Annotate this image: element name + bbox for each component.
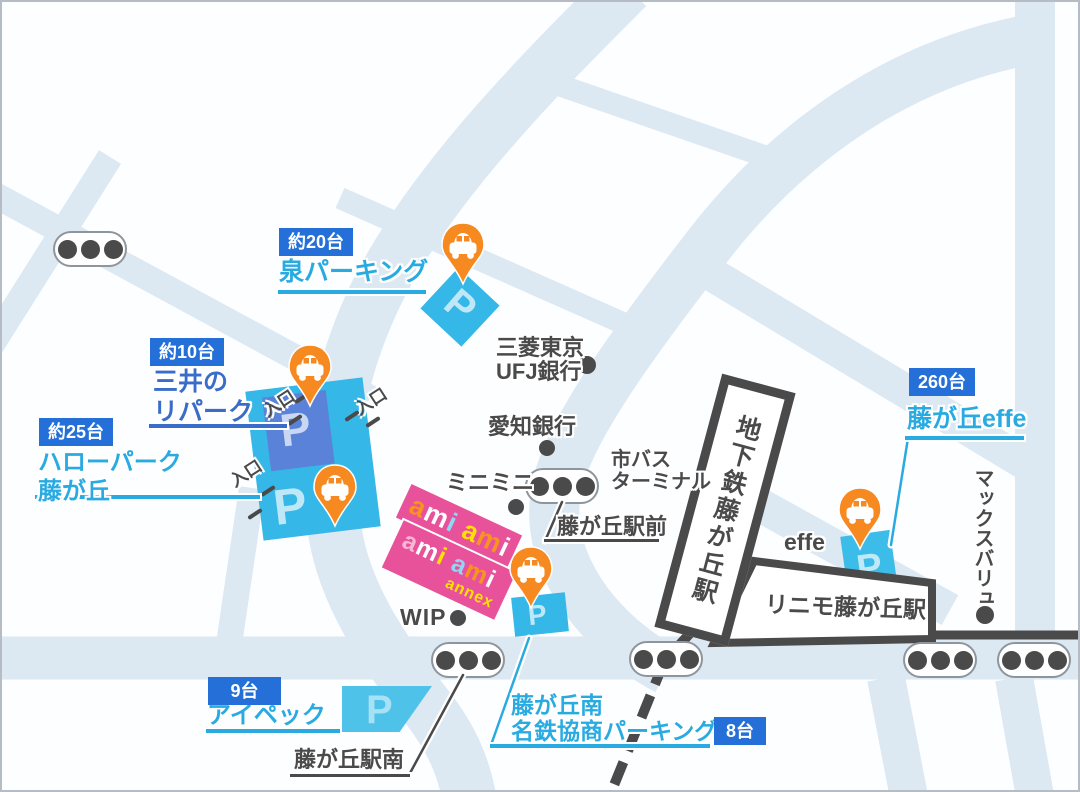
hello-park-label: ハローパーク 藤が丘 — [38, 448, 182, 507]
ipec-capacity-badge: 9台 — [208, 677, 281, 705]
minami-meitetsu-pin — [508, 546, 554, 610]
ekimae-street-label: 藤が丘駅前 — [557, 514, 667, 540]
mufg-bank-label-line2: UFJ銀行 — [496, 360, 584, 384]
mufg-bank-label-line1: 三菱東京 — [496, 336, 584, 360]
izumi-capacity-badge: 約20台 — [279, 228, 353, 256]
maxvalu-label: マックスバリュ — [970, 468, 994, 618]
effe-store-label: effe — [784, 529, 825, 557]
bus-terminal-label: 市バス ターミナル — [611, 449, 711, 493]
hello-park-label-line2: 藤が丘 — [38, 477, 182, 506]
fujigaoka-parking-map: P P P P P P 地下鉄藤が丘駅 リニモ藤が丘駅 ami ami ami … — [0, 0, 1080, 792]
izumi-parking-pin — [440, 222, 486, 286]
hello-park-label-line1: ハローパーク — [38, 448, 182, 477]
minami-meitetsu-label: 藤が丘南 名鉄協商パーキング — [511, 692, 717, 744]
effe-parking-callout-line — [891, 438, 908, 545]
ekiminami-underline — [290, 774, 410, 777]
minami-meitetsu-label-line1: 藤が丘南 — [511, 692, 717, 718]
bus-terminal-label-line1: 市バス — [611, 449, 711, 471]
aichi-bank-label: 愛知銀行 — [488, 414, 576, 440]
mitsui-capacity-badge: 約10台 — [150, 338, 224, 366]
hello-park-pin — [312, 464, 358, 528]
ipec-parking-label: アイペック — [207, 702, 326, 731]
mufg-bank-label: 三菱東京 UFJ銀行 — [496, 336, 584, 384]
wip-label: WIP — [400, 604, 446, 632]
ekiminami-street-label: 藤が丘駅南 — [294, 747, 404, 773]
hello-capacity-badge: 約25台 — [39, 418, 113, 446]
minimini-label: ミニミニ — [446, 470, 534, 496]
minami-capacity-badge: 8台 — [714, 717, 766, 745]
minami-meitetsu-label-line2: 名鉄協商パーキング — [511, 718, 717, 744]
ekiminami-callout-line — [409, 675, 463, 775]
bus-terminal-label-line2: ターミナル — [611, 471, 711, 493]
effe-capacity-badge: 260台 — [909, 368, 975, 396]
minami-underline — [490, 744, 710, 748]
mitsui-repark-label-line1: 三井の — [153, 368, 253, 398]
mitsui-repark-label: 三井の リパーク — [153, 368, 253, 427]
mitsui-repark-label-line2: リパーク — [153, 398, 253, 428]
effe-parking-label: 藤が丘effe — [907, 404, 1026, 434]
effe-parking-pin — [837, 487, 883, 551]
mitsui-repark-pin — [287, 344, 333, 408]
izumi-underline — [278, 290, 426, 294]
effe-underline — [905, 436, 1024, 440]
izumi-parking-label: 泉パーキング — [279, 257, 428, 287]
